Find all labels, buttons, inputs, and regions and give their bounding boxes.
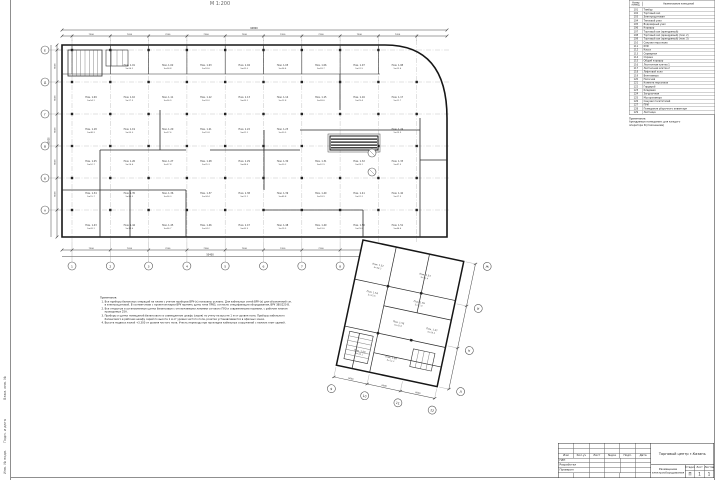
svg-text:8: 8 <box>339 264 341 268</box>
svg-text:S=24.8: S=24.8 <box>164 68 172 70</box>
svg-text:S=14.6: S=14.6 <box>125 228 133 230</box>
svg-text:7200: 7200 <box>318 34 324 36</box>
svg-text:S=25.3: S=25.3 <box>202 164 210 166</box>
svg-text:Пом. 1.32: Пом. 1.32 <box>353 160 365 163</box>
svg-text:3: 3 <box>148 264 150 268</box>
svg-text:Пом. 1.39: Пом. 1.39 <box>277 192 289 195</box>
svg-text:Пом. 1.43: Пом. 1.43 <box>85 224 97 227</box>
svg-text:6000: 6000 <box>55 159 57 165</box>
svg-text:Пом. 1.17: Пом. 1.17 <box>392 96 404 99</box>
svg-text:Пом. 1.45: Пом. 1.45 <box>162 224 174 227</box>
rev-col-data: Дата <box>636 453 651 457</box>
svg-text:S=38.6: S=38.6 <box>317 100 325 102</box>
svg-text:Пом. 1.13: Пом. 1.13 <box>238 96 250 99</box>
svg-text:Пом. 1.49: Пом. 1.49 <box>315 224 327 227</box>
svg-text:S=12.8: S=12.8 <box>279 100 287 102</box>
svg-text:7200: 7200 <box>357 34 363 36</box>
svg-text:Пом. 1.31: Пом. 1.31 <box>315 160 327 163</box>
note-item: Высота подвеса жилой +3.300 от уровня чи… <box>105 321 294 324</box>
stage-value-row: П 1 1 <box>686 471 714 478</box>
note-item: Приборы и щитки помещений балансового в … <box>105 314 294 320</box>
floor-plan-canvas: 7200720072007200720072007200720072006480… <box>0 0 720 480</box>
svg-text:S=21.7: S=21.7 <box>394 100 402 102</box>
svg-text:Пом. 1.08: Пом. 1.08 <box>392 64 404 67</box>
svg-text:S=22.4: S=22.4 <box>394 68 402 70</box>
svg-text:Пом. 1.22: Пом. 1.22 <box>238 128 250 131</box>
svg-text:S=26.0: S=26.0 <box>164 196 172 198</box>
svg-text:Пом. 1.18: Пом. 1.18 <box>85 128 97 131</box>
svg-text:S=17.3: S=17.3 <box>125 100 133 102</box>
svg-text:Пом. 1.15: Пом. 1.15 <box>315 96 327 99</box>
title-block: Изм Кол.уч Лист №док Подп. Дата ГИП Разр… <box>558 443 714 478</box>
sheet-label: Лист <box>695 465 705 470</box>
svg-text:Пом. 1.09: Пом. 1.09 <box>85 96 97 99</box>
svg-text:S=33.0: S=33.0 <box>202 100 210 102</box>
svg-text:Пом. 1.30: Пом. 1.30 <box>277 160 289 163</box>
role-gip: ГИП <box>559 458 590 462</box>
svg-text:Пом. 1.37: Пом. 1.37 <box>200 192 212 195</box>
svg-text:S=44.6: S=44.6 <box>240 164 248 166</box>
title-block-revision-grid: Изм Кол.уч Лист №док Подп. Дата ГИП Разр… <box>559 444 652 478</box>
legend-header-row: Номер помещ. Наименование помещений <box>629 0 714 8</box>
svg-text:S=22.1: S=22.1 <box>240 196 248 198</box>
svg-text:7200: 7200 <box>318 248 324 250</box>
legend-note: Примечание: Арендуемые помещения: для ка… <box>629 117 712 127</box>
svg-text:Пом. 1.25: Пом. 1.25 <box>85 160 97 163</box>
svg-text:Пом. 1.07: Пом. 1.07 <box>353 64 365 67</box>
svg-text:Пом. 1.02: Пом. 1.02 <box>162 64 174 67</box>
svg-text:S=36.4: S=36.4 <box>279 68 287 70</box>
svg-text:Пом. 1.46: Пом. 1.46 <box>200 224 212 227</box>
rev-col-list: Лист <box>589 453 604 457</box>
svg-text:Пом. 1.23: Пом. 1.23 <box>277 128 289 131</box>
svg-text:S=31.2: S=31.2 <box>355 196 363 198</box>
svg-text:Пом. 1.03: Пом. 1.03 <box>200 64 212 67</box>
svg-text:Пом. 1.05: Пом. 1.05 <box>277 64 289 67</box>
project-title: Торговый центр г.Казань <box>651 444 714 466</box>
svg-text:S=28.7: S=28.7 <box>317 68 325 70</box>
svg-text:S=34.4: S=34.4 <box>202 196 210 198</box>
svg-text:Пом. 1.38: Пом. 1.38 <box>238 192 250 195</box>
stage-value: П <box>686 471 696 478</box>
svg-text:Пом. 1.50: Пом. 1.50 <box>353 224 365 227</box>
svg-text:7200: 7200 <box>165 248 171 250</box>
svg-text:7200: 7200 <box>203 248 209 250</box>
rev-col-podp: Подп. <box>620 453 635 457</box>
svg-text:6000: 6000 <box>55 63 57 69</box>
svg-text:S=37.8: S=37.8 <box>164 164 172 166</box>
sheet-value: 1 <box>695 471 705 478</box>
svg-text:7200: 7200 <box>242 34 248 36</box>
svg-text:6: 6 <box>263 264 265 268</box>
svg-text:Пом. 1.42: Пом. 1.42 <box>392 192 404 195</box>
axis-grid <box>57 40 450 242</box>
svg-text:4: 4 <box>186 264 188 268</box>
drawing-sheet: М 1:200 Взам. инв. № Подп. и дата Инв. №… <box>0 0 720 480</box>
svg-text:Пом. 1.14: Пом. 1.14 <box>277 96 289 99</box>
sheets-value: 1 <box>705 471 714 478</box>
svg-text:Пом. 1.04: Пом. 1.04 <box>238 64 250 67</box>
svg-text:Пом. 1.35: Пом. 1.35 <box>124 192 136 195</box>
svg-text:S=16.4: S=16.4 <box>125 164 133 166</box>
svg-text:S=24.2: S=24.2 <box>202 228 210 230</box>
rev-col-izm: Изм <box>559 453 574 457</box>
sheets-label: Листов <box>705 465 714 470</box>
svg-text:50400: 50400 <box>206 253 214 256</box>
title-block-right: Торговый центр г.Казань Размещение элект… <box>651 444 714 478</box>
svg-text:Пом. 1.27: Пом. 1.27 <box>162 160 174 163</box>
svg-text:Пом. 1.21: Пом. 1.21 <box>200 128 212 131</box>
svg-text:Пом. 1.36: Пом. 1.36 <box>162 192 174 195</box>
svg-text:S=20.2: S=20.2 <box>279 164 287 166</box>
svg-text:S=54.1: S=54.1 <box>87 100 95 102</box>
svg-text:Б: Б <box>44 176 46 180</box>
svg-text:S=35.0: S=35.0 <box>125 132 133 134</box>
svg-text:В: В <box>44 144 46 148</box>
room-legend: Номер помещ. Наименование помещений 101Т… <box>629 0 715 127</box>
svg-text:S=18.6: S=18.6 <box>202 68 210 70</box>
svg-text:Е: Е <box>44 48 46 52</box>
svg-text:S=41.2: S=41.2 <box>240 132 248 134</box>
svg-text:Пом. 1.26: Пом. 1.26 <box>124 160 136 163</box>
svg-text:S=31.5: S=31.5 <box>355 68 363 70</box>
svg-text:S=48.3: S=48.3 <box>87 132 95 134</box>
svg-text:S=19.5: S=19.5 <box>279 228 287 230</box>
svg-text:S=26.9: S=26.9 <box>164 100 172 102</box>
svg-text:Пом. 1.16: Пом. 1.16 <box>353 96 365 99</box>
revision-empty-row <box>559 473 651 477</box>
svg-text:S=45.2: S=45.2 <box>240 100 248 102</box>
svg-text:7200: 7200 <box>280 34 286 36</box>
notes-block: Примечания: Все приборы балансных операц… <box>100 296 293 325</box>
svg-text:S=27.3: S=27.3 <box>394 196 402 198</box>
svg-text:Пом. 1.19: Пом. 1.19 <box>124 128 136 131</box>
drawing-title: Размещение электрооборудования <box>651 465 686 478</box>
svg-text:5: 5 <box>224 264 226 268</box>
notes-title: Примечания: <box>100 296 293 299</box>
interior-walls <box>62 45 447 237</box>
svg-text:7200: 7200 <box>127 248 133 250</box>
svg-text:S=32.9: S=32.9 <box>317 164 325 166</box>
svg-text:S=47.5: S=47.5 <box>394 164 402 166</box>
svg-text:S=27.6: S=27.6 <box>164 132 172 134</box>
svg-text:Пом. 1.40: Пом. 1.40 <box>315 192 327 195</box>
svg-text:S=15.7: S=15.7 <box>87 196 95 198</box>
stair-top-left <box>68 50 128 76</box>
svg-text:S=52.7: S=52.7 <box>87 164 95 166</box>
svg-text:S=23.9: S=23.9 <box>394 132 402 134</box>
svg-text:Пом. 1.44: Пом. 1.44 <box>124 224 136 227</box>
note-item: Все открытые и установленные щитки балан… <box>105 307 294 313</box>
legend-note-line2: оператора N (пояснением) <box>629 123 712 126</box>
svg-text:Пом. 1.33: Пом. 1.33 <box>392 160 404 163</box>
svg-text:6000: 6000 <box>55 191 57 197</box>
svg-text:S=28.1: S=28.1 <box>355 164 363 166</box>
svg-text:S=36.2: S=36.2 <box>125 68 133 70</box>
svg-text:Пом. 1.11: Пом. 1.11 <box>162 96 174 99</box>
svg-text:Пом. 1.28: Пом. 1.28 <box>200 160 212 163</box>
svg-text:6000: 6000 <box>55 127 57 133</box>
svg-text:7200: 7200 <box>127 34 133 36</box>
svg-text:Пом. 1.24: Пом. 1.24 <box>392 128 404 131</box>
svg-text:S=19.8: S=19.8 <box>202 132 210 134</box>
wing: 6000600060009101112ЖИКЛПом. 1.52S=58.3По… <box>327 235 492 420</box>
svg-text:7200: 7200 <box>203 34 209 36</box>
svg-text:7200: 7200 <box>395 34 401 36</box>
dimension-chains: 7200720072007200720072007200720072006480… <box>48 27 449 257</box>
svg-text:S=39.3: S=39.3 <box>125 196 133 198</box>
svg-text:S=43.1: S=43.1 <box>87 228 95 230</box>
role-developer: Разработал <box>559 463 590 467</box>
note-item: Все приборы балансных операций на плане … <box>105 300 294 306</box>
round-symbols <box>368 149 376 176</box>
legend-header-name: Наименование помещений <box>643 3 715 6</box>
svg-text:Пом. 1.12: Пом. 1.12 <box>200 96 212 99</box>
svg-text:Пом. 1.06: Пом. 1.06 <box>315 64 327 67</box>
svg-text:S=18.9: S=18.9 <box>317 196 325 198</box>
legend-rows: 101Тамбур102Торговый зал103Электрощитова… <box>629 8 714 114</box>
svg-text:S=30.5: S=30.5 <box>279 132 287 134</box>
svg-text:7200: 7200 <box>89 248 95 250</box>
notes-list: Все приборы балансных операций на плане … <box>105 300 294 325</box>
rev-col-dok: №док <box>605 453 620 457</box>
svg-text:Пом. 1.01: Пом. 1.01 <box>124 64 136 67</box>
rev-col-koluch: Кол.уч <box>574 453 589 457</box>
stage-label: Стадия <box>686 465 696 470</box>
svg-text:Пом. 1.41: Пом. 1.41 <box>353 192 365 195</box>
svg-text:1: 1 <box>71 264 73 268</box>
svg-text:6000: 6000 <box>55 95 57 101</box>
svg-text:7200: 7200 <box>242 248 248 250</box>
svg-text:Пом. 1.20: Пом. 1.20 <box>162 128 174 131</box>
svg-text:Пом. 1.47: Пом. 1.47 <box>238 224 250 227</box>
svg-text:Пом. 1.10: Пом. 1.10 <box>124 96 136 99</box>
svg-text:Пом. 1.51: Пом. 1.51 <box>392 224 404 227</box>
room-legend-table: Номер помещ. Наименование помещений 101Т… <box>629 0 715 115</box>
role-checker: Проверил <box>559 468 590 472</box>
svg-text:7200: 7200 <box>280 248 286 250</box>
svg-text:S=33.6: S=33.6 <box>317 228 325 230</box>
svg-text:S=49.8: S=49.8 <box>279 196 287 198</box>
svg-text:Пом. 1.29: Пом. 1.29 <box>238 160 250 163</box>
svg-text:7200: 7200 <box>165 34 171 36</box>
svg-text:S=40.9: S=40.9 <box>240 228 248 230</box>
svg-text:Пом. 1.48: Пом. 1.48 <box>277 224 289 227</box>
svg-text:64800: 64800 <box>250 27 258 30</box>
legend-row: 129Лестница <box>629 111 714 115</box>
svg-text:S=29.8: S=29.8 <box>355 228 363 230</box>
svg-text:7: 7 <box>301 264 303 268</box>
legend-header-number: Номер помещ. <box>629 2 642 7</box>
svg-text:S=46.4: S=46.4 <box>394 228 402 230</box>
svg-text:2: 2 <box>109 264 111 268</box>
svg-text:7200: 7200 <box>89 34 95 36</box>
svg-text:Пом. 1.34: Пом. 1.34 <box>85 192 97 195</box>
svg-text:S=36.7: S=36.7 <box>164 228 172 230</box>
svg-text:S=29.4: S=29.4 <box>355 100 363 102</box>
svg-text:Г: Г <box>44 112 46 116</box>
svg-text:S=42.0: S=42.0 <box>240 68 248 70</box>
